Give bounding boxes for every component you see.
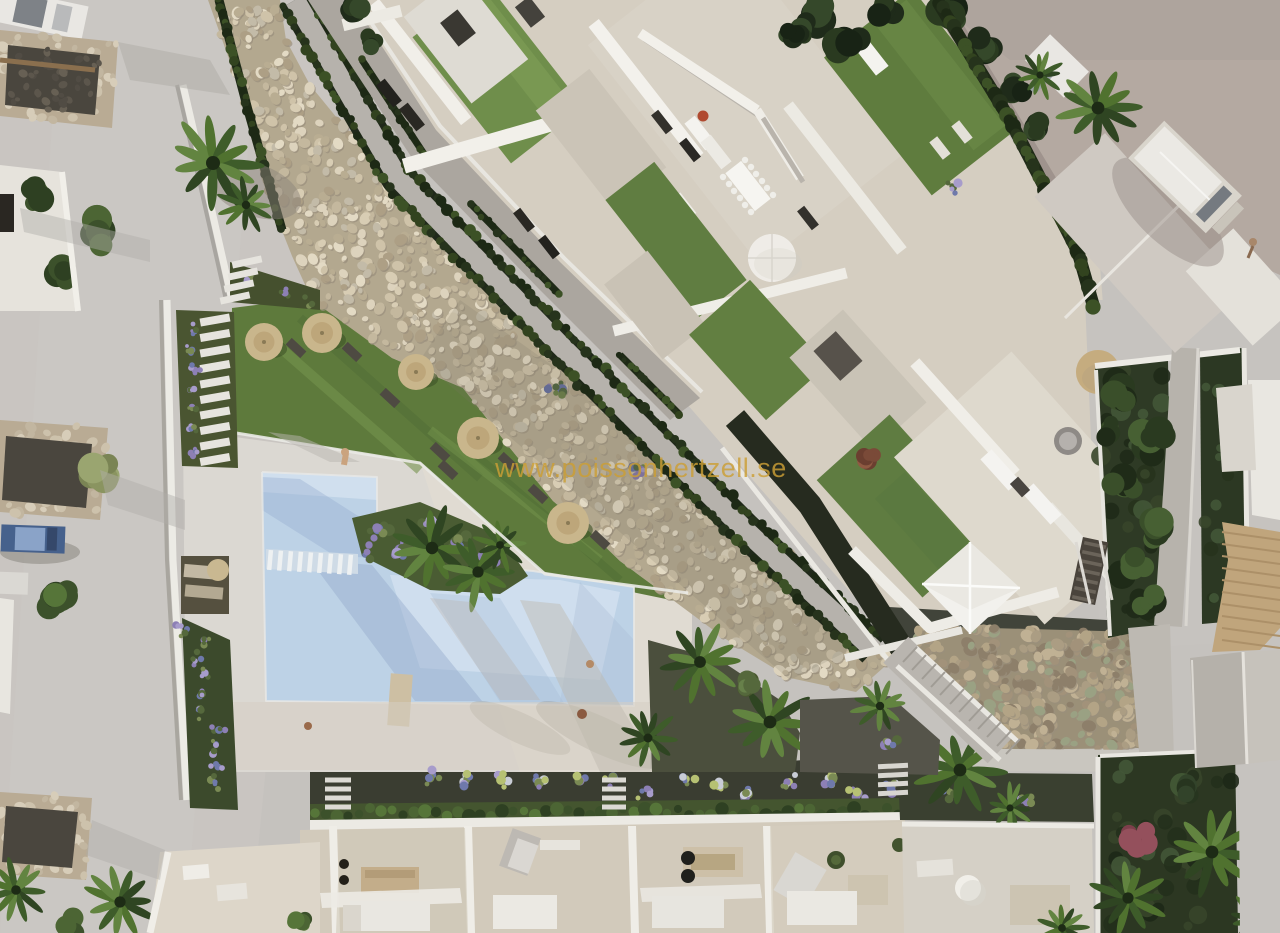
svg-text:www.poissonhertzell.se: www.poissonhertzell.se — [494, 453, 787, 483]
